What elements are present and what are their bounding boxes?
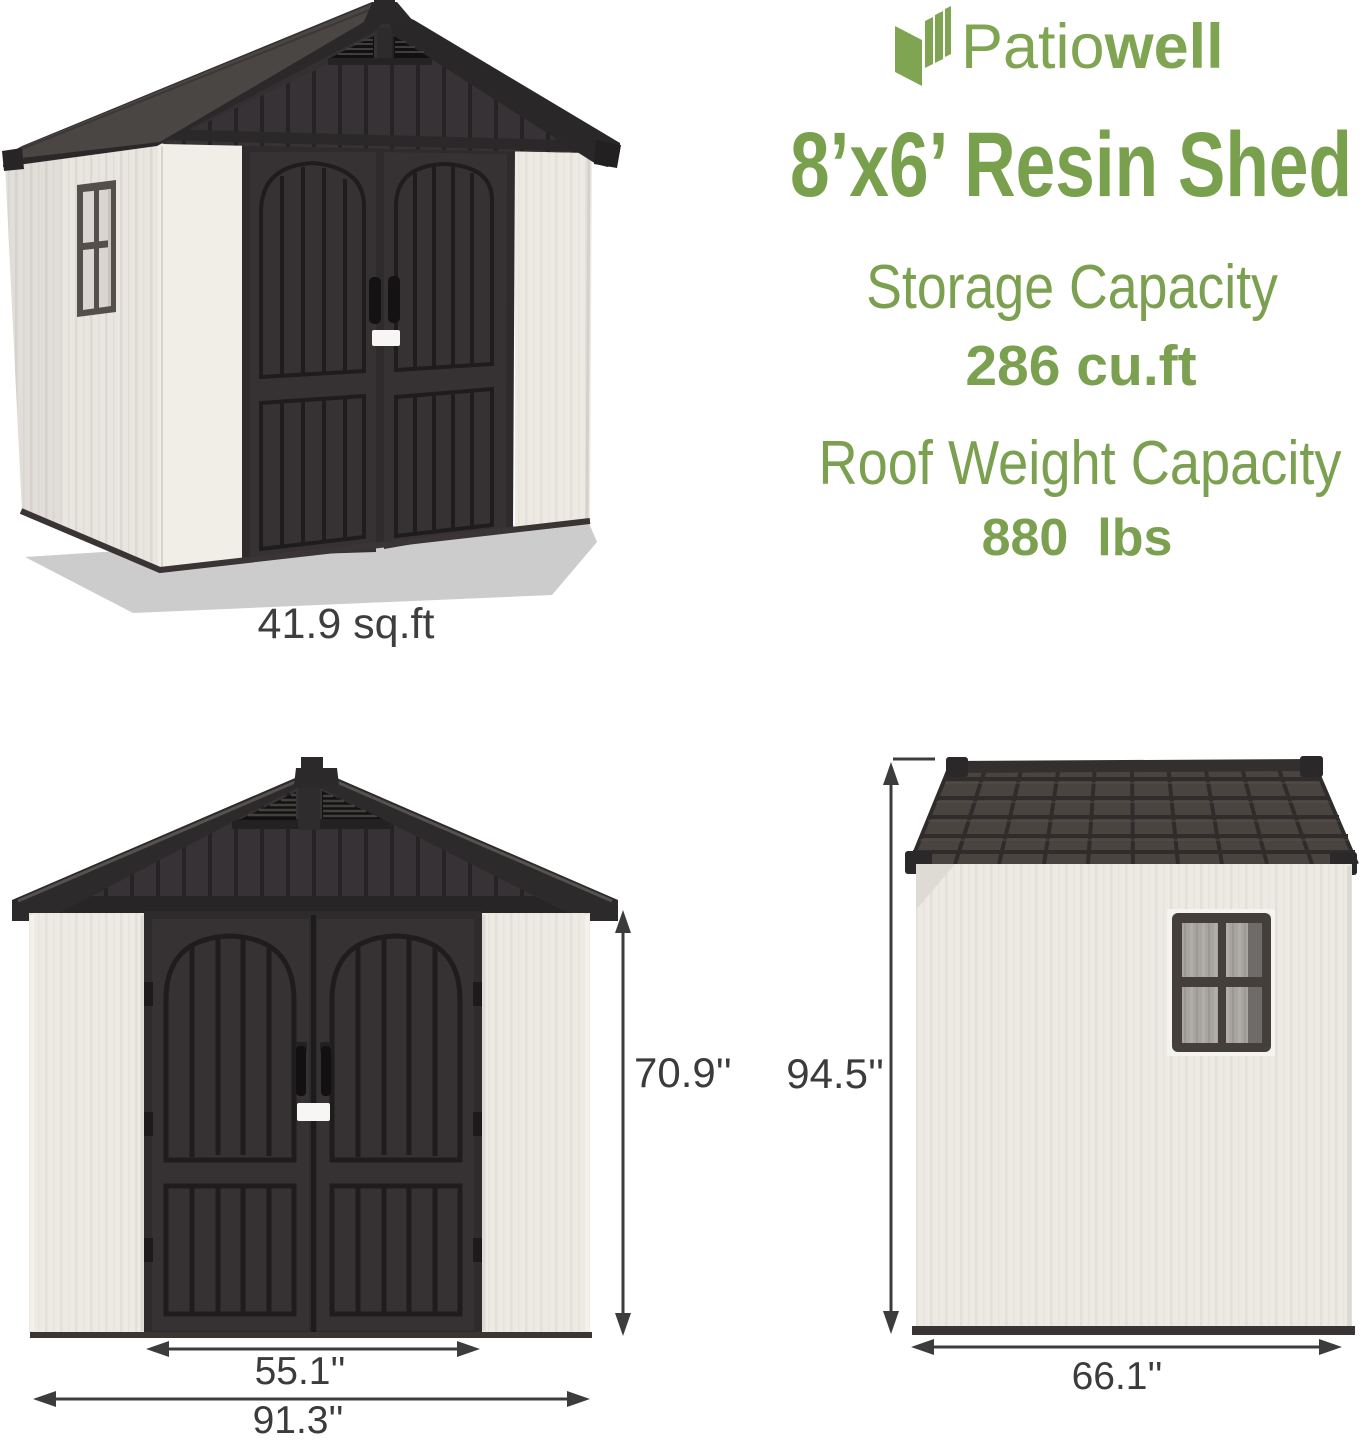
svg-text:41.9 sq.ft: 41.9 sq.ft (258, 600, 435, 648)
svg-text:66.1'': 66.1'' (1072, 1355, 1163, 1398)
svg-text:8’x6’ Resin Shed: 8’x6’ Resin Shed (790, 114, 1352, 216)
svg-text:70.9'': 70.9'' (634, 1049, 732, 1096)
svg-text:55.1'': 55.1'' (255, 1350, 346, 1393)
svg-text:880 lbs: 880 lbs (982, 509, 1173, 567)
svg-text:Patiowell: Patiowell (961, 12, 1224, 82)
svg-text:91.3'': 91.3'' (253, 1399, 344, 1441)
svg-text:94.5'': 94.5'' (786, 1050, 884, 1097)
svg-text:286 cu.ft: 286 cu.ft (965, 334, 1196, 398)
svg-text:Roof Weight Capacity: Roof Weight Capacity (818, 429, 1341, 498)
svg-text:Storage Capacity: Storage Capacity (866, 253, 1278, 321)
